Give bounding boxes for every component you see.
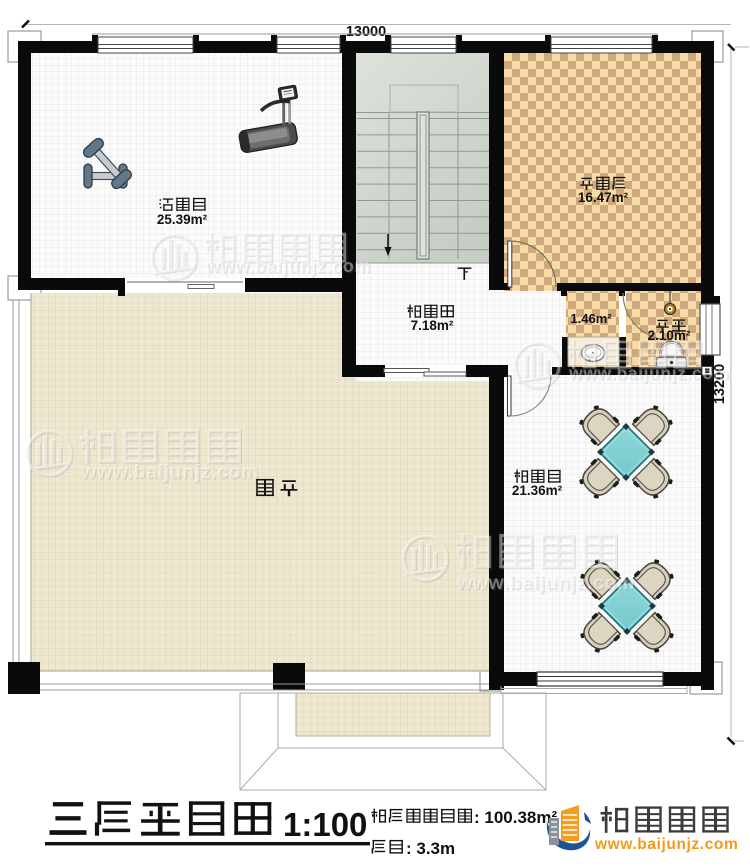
svg-text:www.baijunjz.com: www.baijunjz.com — [456, 572, 635, 594]
svg-text:www.baijunjz.com: www.baijunjz.com — [594, 836, 738, 853]
svg-text:1.46m²: 1.46m² — [570, 311, 612, 326]
svg-text:21.36m²: 21.36m² — [512, 483, 563, 498]
svg-text:7.18m²: 7.18m² — [411, 318, 454, 333]
svg-text:25.39m²: 25.39m² — [157, 212, 208, 227]
svg-text:www.baijunjz.com: www.baijunjz.com — [205, 256, 371, 276]
svg-text:www.baijunjz.com: www.baijunjz.com — [80, 461, 259, 483]
svg-text:1:100: 1:100 — [283, 806, 367, 843]
svg-text:: 100.38m²: : 100.38m² — [474, 808, 557, 827]
svg-text:: 3.3m: : 3.3m — [406, 839, 455, 858]
svg-text:16.47m²: 16.47m² — [578, 190, 629, 205]
svg-text:www.baijunjz.com: www.baijunjz.com — [568, 363, 730, 383]
svg-text:13000: 13000 — [346, 24, 386, 40]
